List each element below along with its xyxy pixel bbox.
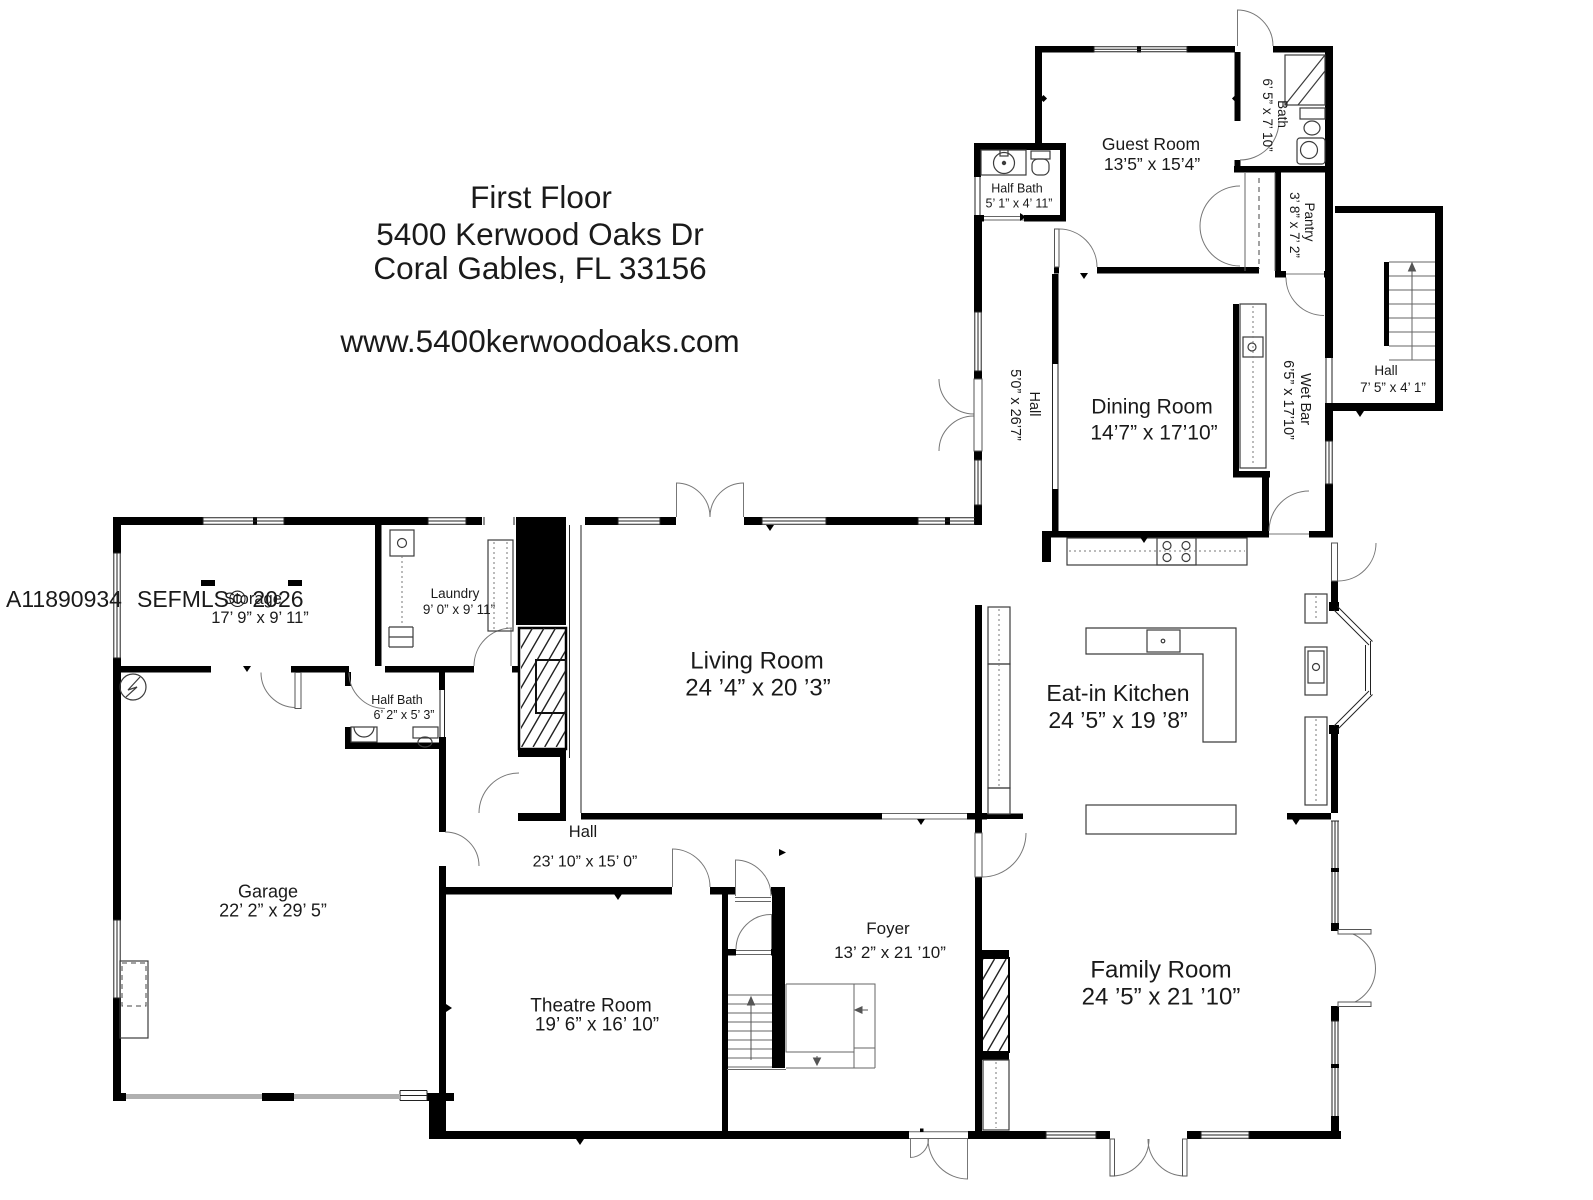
svg-text:23’ 10” x 15’ 0”: 23’ 10” x 15’ 0”	[533, 854, 638, 871]
svg-text:14’7” x 17’10”: 14’7” x 17’10”	[1090, 422, 1217, 445]
svg-text:First Floor: First Floor	[470, 179, 612, 215]
svg-text:Half Bath: Half Bath	[371, 693, 422, 707]
svg-text:Storage: Storage	[224, 590, 282, 608]
svg-text:Garage: Garage	[238, 882, 298, 902]
svg-text:5400 Kerwood Oaks Dr: 5400 Kerwood Oaks Dr	[376, 216, 703, 252]
svg-text:Hall: Hall	[1026, 392, 1042, 417]
svg-text:A11890934: A11890934	[6, 586, 122, 612]
svg-text:24 ’5” x 19 ’8”: 24 ’5” x 19 ’8”	[1048, 707, 1187, 733]
svg-text:Dining Room: Dining Room	[1091, 396, 1212, 419]
svg-text:Family Room: Family Room	[1090, 957, 1231, 984]
svg-text:Guest Room: Guest Room	[1102, 134, 1200, 154]
svg-text:13’5” x 15’4”: 13’5” x 15’4”	[1104, 154, 1200, 174]
svg-text:Foyer: Foyer	[866, 919, 910, 938]
svg-text:6’ 5” x 7’ 10”: 6’ 5” x 7’ 10”	[1260, 78, 1275, 151]
svg-text:6’5” x 17’10”: 6’5” x 17’10”	[1280, 360, 1296, 440]
svg-text:7’ 5” x 4’ 1”: 7’ 5” x 4’ 1”	[1360, 380, 1426, 395]
svg-text:3’ 8” x 7’ 2”: 3’ 8” x 7’ 2”	[1287, 192, 1302, 258]
svg-text:Eat-in Kitchen: Eat-in Kitchen	[1046, 680, 1189, 706]
svg-text:Bath: Bath	[1275, 100, 1290, 128]
svg-text:19’ 6” x 16’ 10”: 19’ 6” x 16’ 10”	[535, 1015, 659, 1036]
svg-text:Coral Gables, FL 33156: Coral Gables, FL 33156	[373, 250, 706, 286]
svg-text:17’ 9” x 9’ 11”: 17’ 9” x 9’ 11”	[211, 609, 309, 627]
svg-text:24 ’4” x 20 ’3”: 24 ’4” x 20 ’3”	[685, 675, 830, 702]
svg-text:Laundry: Laundry	[431, 586, 480, 601]
svg-text:22’ 2” x 29’ 5”: 22’ 2” x 29’ 5”	[219, 901, 327, 921]
svg-text:Half Bath: Half Bath	[991, 182, 1042, 196]
svg-text:5’0” x 26’7”: 5’0” x 26’7”	[1007, 369, 1023, 441]
svg-text:Living Room: Living Room	[690, 648, 823, 675]
svg-text:Hall: Hall	[1374, 363, 1397, 378]
svg-text:6’ 2” x 5’ 3”: 6’ 2” x 5’ 3”	[374, 708, 435, 722]
svg-text:Pantry: Pantry	[1302, 202, 1317, 241]
svg-text:24 ’5” x 21 ’10”: 24 ’5” x 21 ’10”	[1082, 984, 1241, 1011]
svg-text:Theatre Room: Theatre Room	[530, 996, 651, 1017]
svg-text:Hall: Hall	[569, 823, 597, 841]
svg-text:13’ 2” x 21 ’10”: 13’ 2” x 21 ’10”	[834, 943, 946, 962]
svg-text:9’ 0” x 9’ 11”: 9’ 0” x 9’ 11”	[423, 602, 495, 617]
svg-text:www.5400kerwoodoaks.com: www.5400kerwoodoaks.com	[339, 323, 739, 359]
svg-text:Wet Bar: Wet Bar	[1297, 373, 1313, 425]
svg-text:5’ 1” x 4’ 11”: 5’ 1” x 4’ 11”	[986, 197, 1053, 211]
